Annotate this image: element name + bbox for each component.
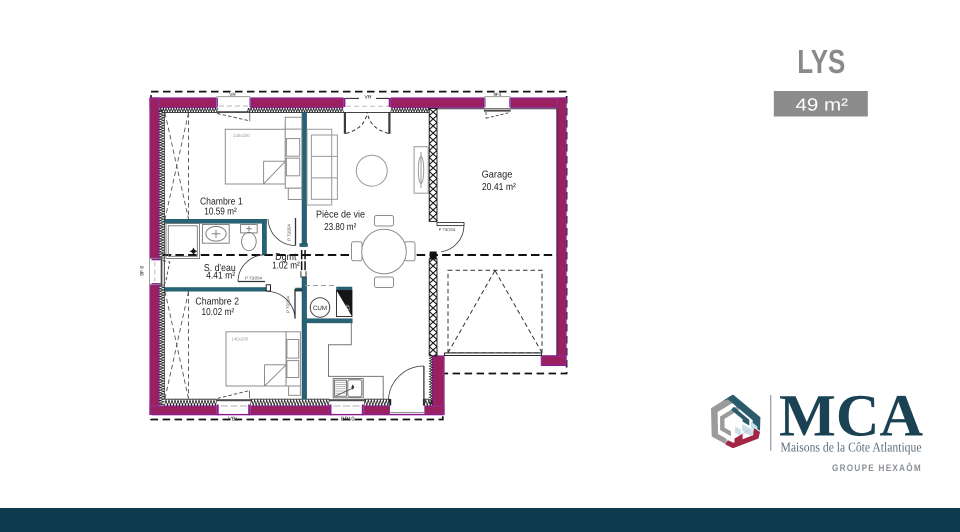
svg-text:49 m²: 49 m²	[796, 95, 849, 115]
svg-text:LYS: LYS	[797, 44, 845, 81]
svg-text:GROUPE HEXAÔM: GROUPE HEXAÔM	[832, 462, 922, 474]
svg-text:Maisons de la Côte Atlantique: Maisons de la Côte Atlantique	[781, 439, 922, 454]
